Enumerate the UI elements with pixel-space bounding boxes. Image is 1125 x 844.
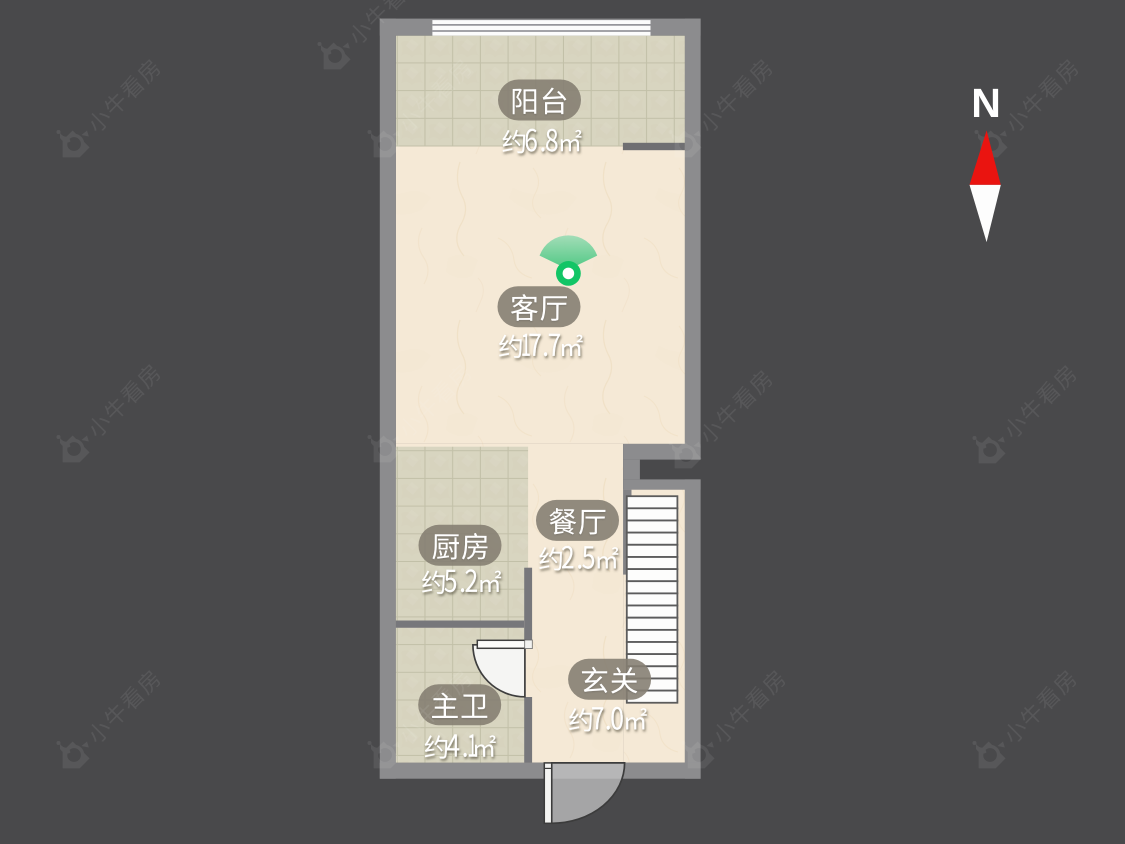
svg-text:N: N bbox=[971, 80, 1001, 126]
